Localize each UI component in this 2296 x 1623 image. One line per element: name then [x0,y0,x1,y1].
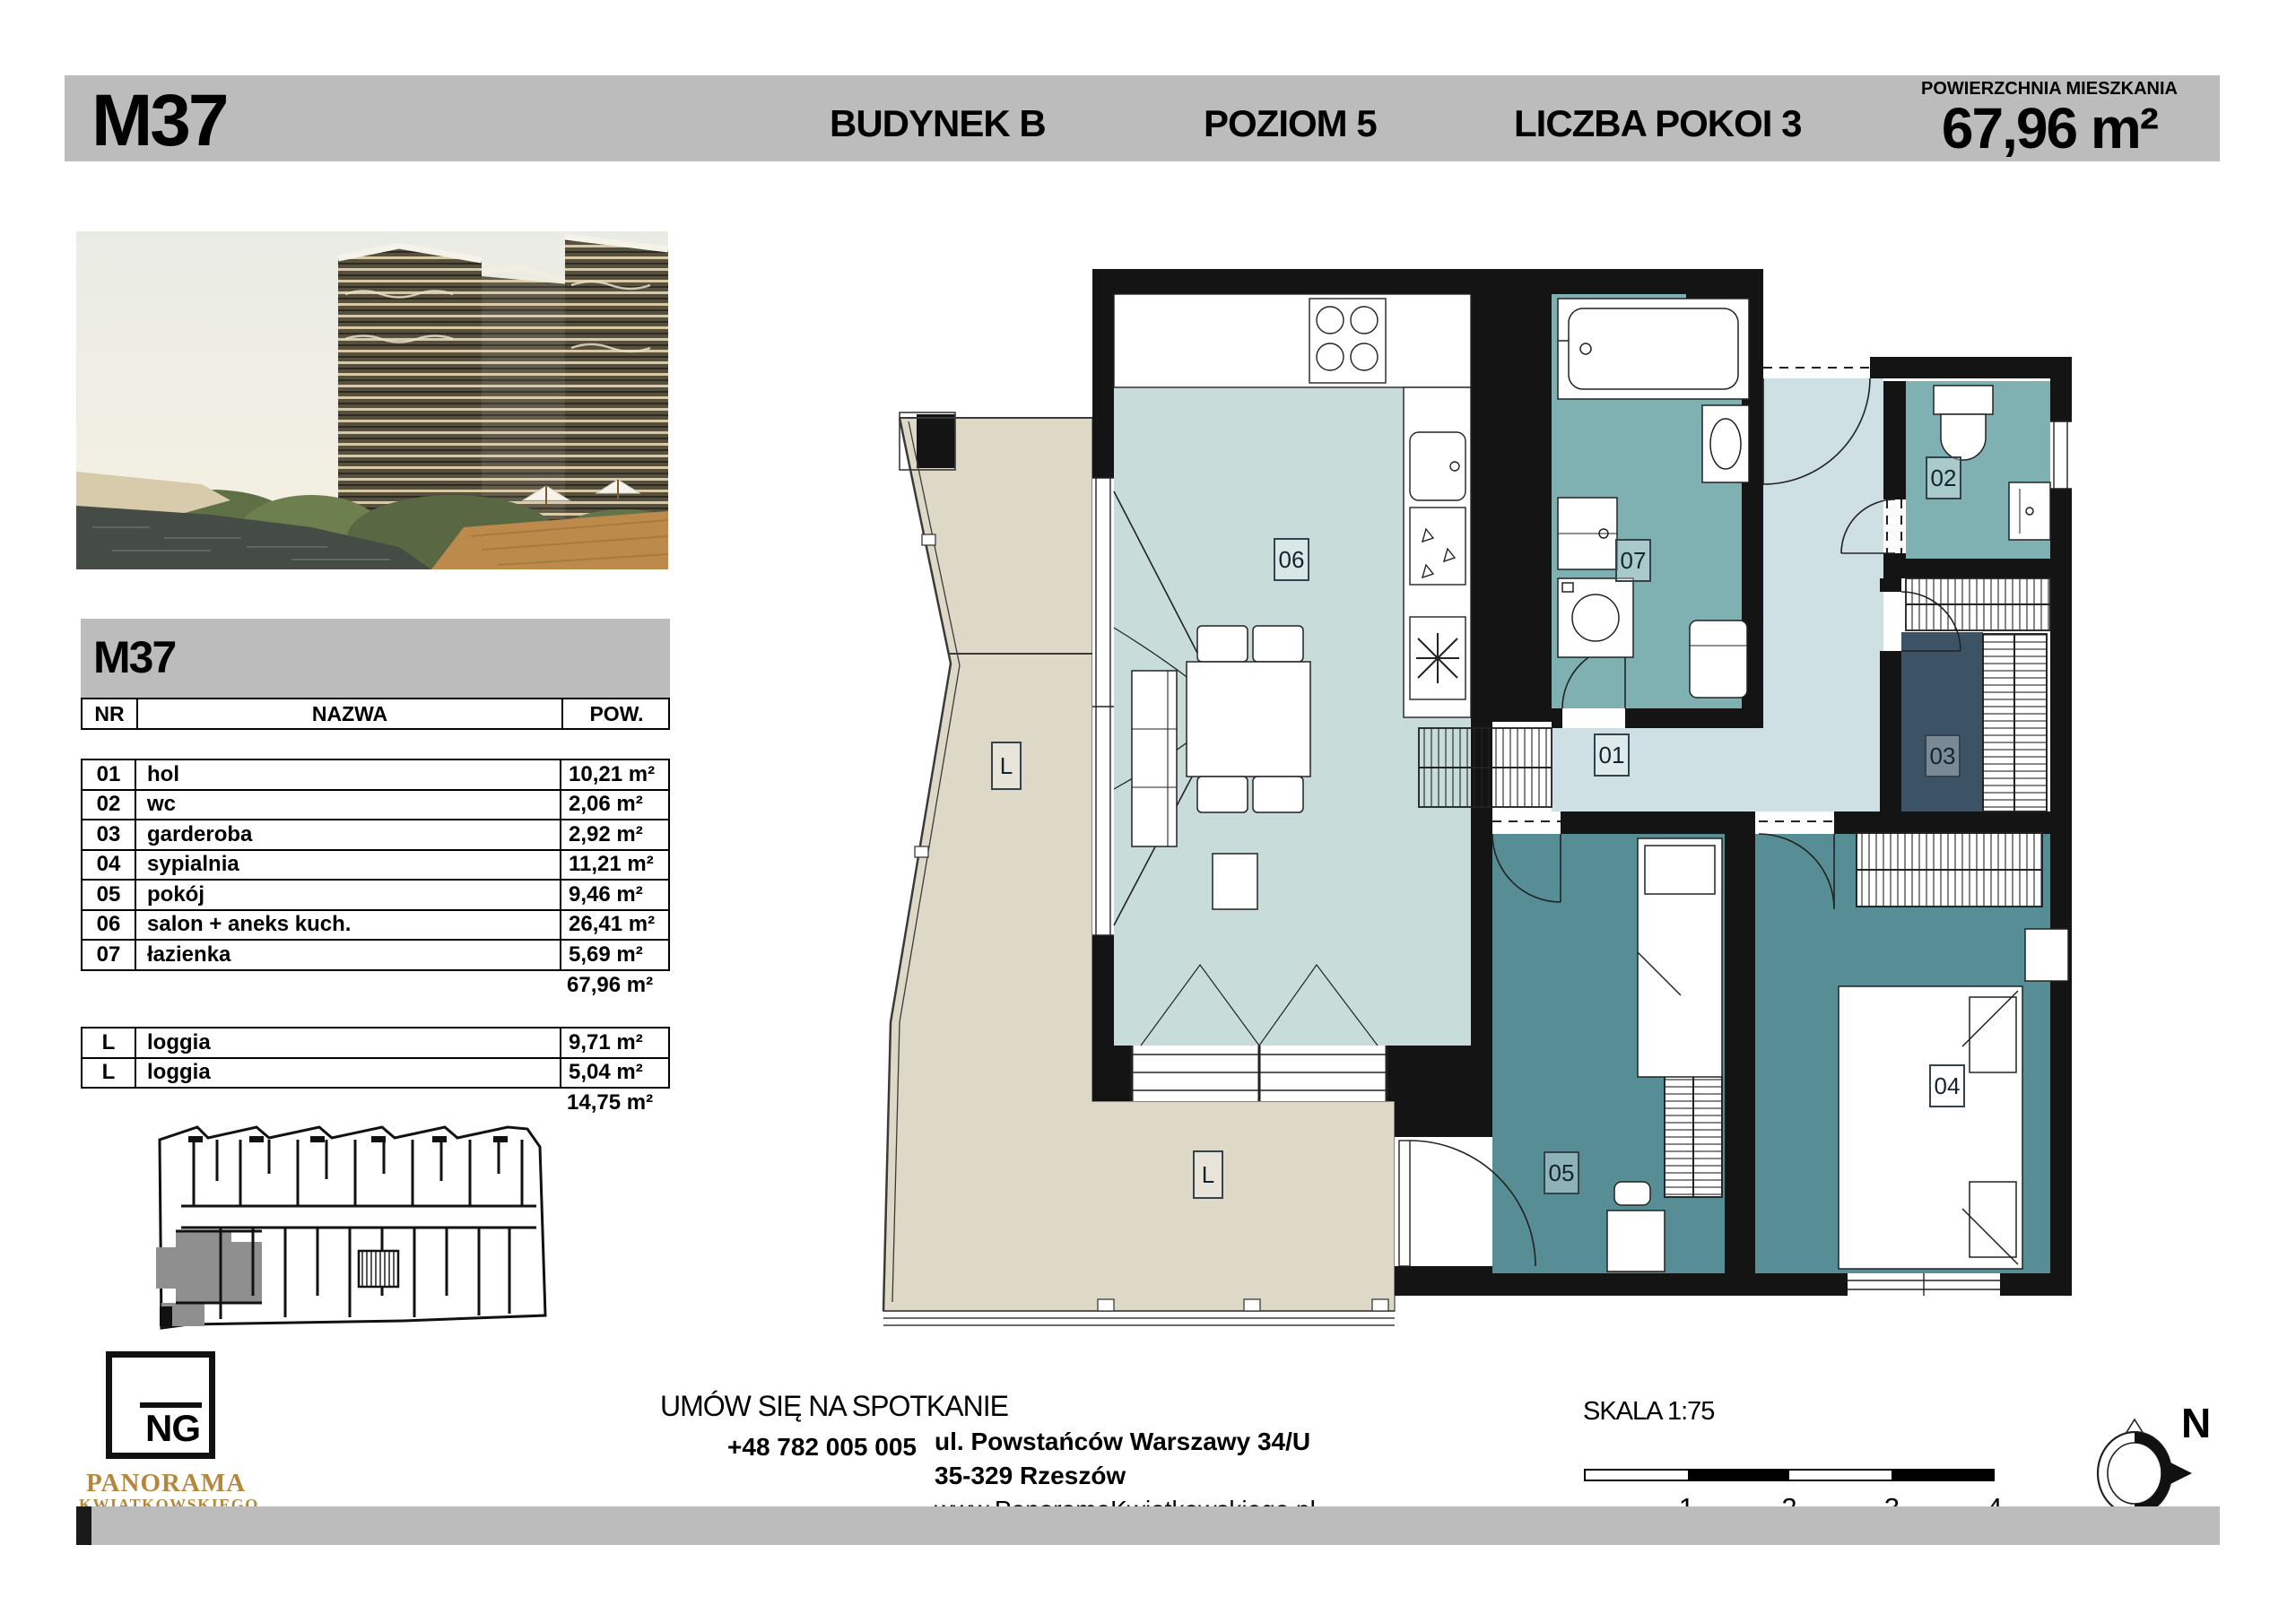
area-value: 67,96 m² [1883,100,2215,158]
scale-seg-3 [1789,1471,1892,1480]
cell-nr: 07 [83,941,136,969]
cell-area: 26,41 m² [561,911,670,940]
cell-name: łazienka [136,941,561,969]
north-label: N [2181,1399,2211,1447]
cell-area: 9,46 m² [561,881,670,909]
meeting-cta: UMÓW SIĘ NA SPOTKANIE [660,1390,1008,1423]
cell-area: 5,04 m² [561,1059,670,1088]
table-row: 06salon + aneks kuch.26,41 m² [83,909,668,940]
footer-accent-block [76,1506,91,1545]
table-row: 04sypialnia11,21 m² [83,849,668,880]
cell-name: salon + aneks kuch. [136,911,561,940]
col-area: POW. [561,699,670,728]
brand-logo: NG [106,1351,215,1459]
table-row: 07łazienka5,69 m² [83,939,668,969]
footer-bar [91,1506,2220,1545]
phone-number[interactable]: +48 782 005 005 [660,1433,917,1462]
logo-monogram: NG [140,1402,202,1447]
cell-area: 9,71 m² [561,1028,670,1057]
building-overview-plan [135,1116,565,1341]
summary-title: M37 [93,631,175,683]
building-photo [76,231,668,569]
cell-nr: 02 [83,791,136,820]
cell-nr: 03 [83,820,136,849]
cell-area: 5,69 m² [561,941,670,969]
rooms-total: 67,96 m² [567,973,653,998]
cell-nr: 04 [83,851,136,880]
cell-nr: L [83,1059,136,1088]
cell-nr: 06 [83,911,136,940]
cell-nr: 05 [83,881,136,909]
scale-seg-4 [1892,1471,1994,1480]
cell-name: loggia [136,1028,561,1057]
table-row: 02wc2,06 m² [83,789,668,820]
cell-nr: L [83,1028,136,1057]
table-row: Lloggia5,04 m² [83,1057,668,1088]
cell-name: garderoba [136,820,561,849]
rooms-table: 01hol10,21 m²02wc2,06 m²03garderoba2,92 … [81,759,670,971]
cell-name: loggia [136,1059,561,1088]
table-row: 05pokój9,46 m² [83,879,668,909]
loggia-total: 14,75 m² [567,1090,653,1115]
brand-name-line1: PANORAMA [86,1469,237,1498]
cell-name: hol [136,760,561,789]
cell-nr: 01 [83,760,136,789]
col-nr: NR [83,699,136,728]
building-label: BUDYNEK B [830,102,1046,145]
cell-area: 2,92 m² [561,820,670,849]
table-row: 03garderoba2,92 m² [83,819,668,849]
room-hol-b [1552,728,1763,811]
loggia-table: Lloggia9,71 m²Lloggia5,04 m² [81,1027,670,1089]
room-hol-a [1763,378,1883,811]
table-row: 01hol10,21 m² [83,760,668,789]
area-block: POWIERZCHNIA MIESZKANIA 67,96 m² [1883,79,2215,158]
scale-seg-1 [1586,1471,1688,1480]
cell-name: sypialnia [136,851,561,880]
rooms-count-label: LICZBA POKOI 3 [1514,102,1801,145]
scale-seg-2 [1688,1471,1790,1480]
cell-area: 11,21 m² [561,851,670,880]
cell-area: 2,06 m² [561,791,670,820]
summary-title-bar: M37 [81,619,670,698]
scale-label: SKALA 1:75 [1583,1397,1714,1427]
flyer-page: M37 BUDYNEK B POZIOM 5 LICZBA POKOI 3 PO… [0,0,2296,1623]
address-line-1: ul. Powstańców Warszawy 34/U [935,1428,1310,1456]
cell-name: pokój [136,881,561,909]
summary-table-header: NR NAZWA POW. [81,698,670,730]
level-label: POZIOM 5 [1204,102,1377,145]
stairs [359,1251,398,1287]
address-line-2: 35-329 Rzeszów [935,1462,1126,1490]
cell-area: 10,21 m² [561,760,670,789]
scale-bar [1584,1469,1995,1481]
col-name: NAZWA [136,699,561,728]
room-garderoba [1901,632,1983,811]
table-row: Lloggia9,71 m² [83,1028,668,1057]
unit-code: M37 [91,84,227,158]
cell-name: wc [136,791,561,820]
floor-plan [879,251,2099,1341]
